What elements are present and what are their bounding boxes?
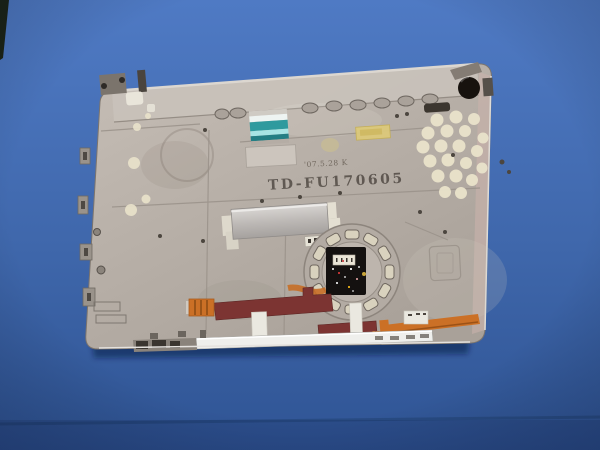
photo-canvas: '07.5.28 K TD-FU170605: [0, 0, 600, 450]
photo-vignette: [0, 0, 600, 450]
photo-laptop-chassis: '07.5.28 K TD-FU170605: [0, 0, 600, 450]
